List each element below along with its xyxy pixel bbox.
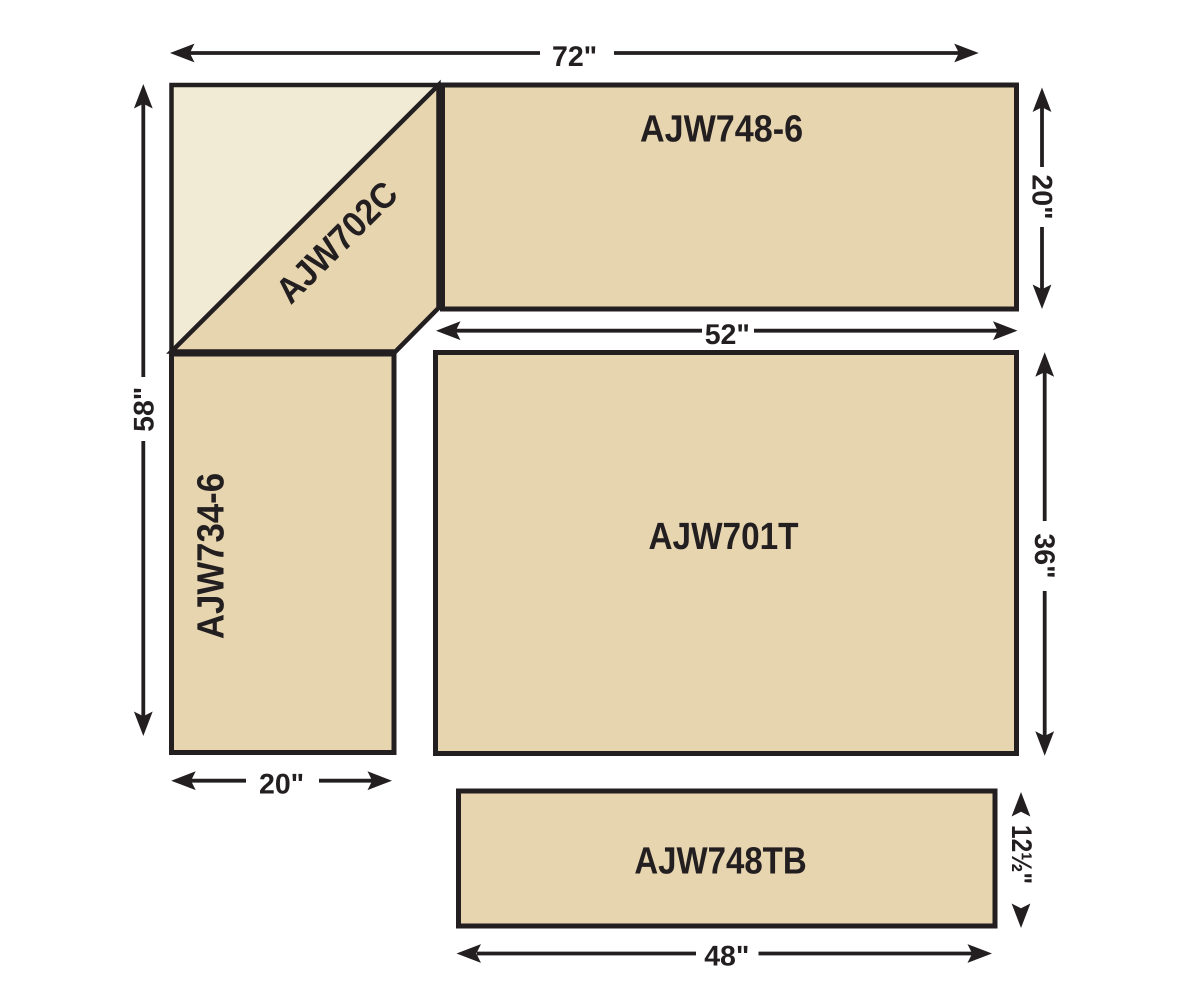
svg-text:AJW748TB: AJW748TB xyxy=(634,841,806,883)
svg-text:AJW748-6: AJW748-6 xyxy=(640,109,803,151)
svg-text:36": 36" xyxy=(1028,533,1060,578)
svg-text:58": 58" xyxy=(128,387,160,432)
svg-text:48": 48" xyxy=(704,941,749,973)
svg-text:20": 20" xyxy=(1026,174,1058,219)
svg-text:72": 72" xyxy=(552,41,597,73)
svg-text:AJW734-6: AJW734-6 xyxy=(191,473,233,639)
svg-text:AJW701T: AJW701T xyxy=(648,516,798,558)
svg-text:20": 20" xyxy=(259,769,304,801)
svg-text:12½": 12½" xyxy=(1005,825,1037,884)
svg-text:52": 52" xyxy=(705,319,750,351)
